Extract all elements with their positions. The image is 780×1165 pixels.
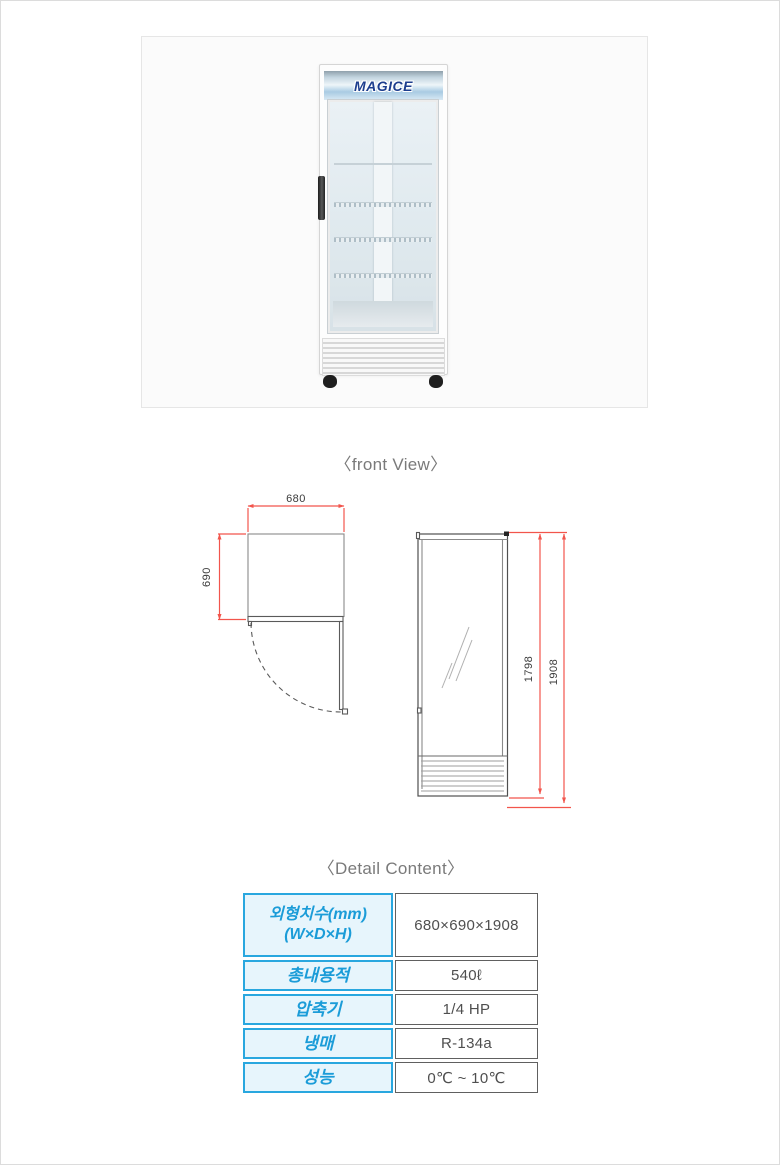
interior-floor xyxy=(333,301,433,327)
spec-label-capacity: 총내용적 xyxy=(243,960,393,991)
spec-value-dimensions: 680×690×1908 xyxy=(395,893,538,957)
shelf xyxy=(334,163,432,165)
brand-band: MAGICE xyxy=(324,71,443,100)
spec-label-performance: 성능 xyxy=(243,1062,393,1093)
dimension-drawings: 680 690 xyxy=(191,491,591,821)
front-view-section-label: 〈front View〉 xyxy=(1,450,780,475)
spec-value-compressor: 1/4 HP xyxy=(395,994,538,1025)
glass-door xyxy=(328,100,438,333)
inner-height-dimension-value: 1798 xyxy=(523,656,535,682)
width-dimension-value: 680 xyxy=(286,493,306,505)
spec-label-compressor: 압축기 xyxy=(243,994,393,1025)
brand-logo: MAGICE xyxy=(354,78,413,94)
wire-shelf xyxy=(334,202,432,207)
wire-shelf xyxy=(334,273,432,278)
top-view-drawing: 680 690 xyxy=(201,493,348,714)
spec-label-dimensions: 외형치수(mm) (W×D×H) xyxy=(243,893,393,957)
overall-height-dimension-value: 1908 xyxy=(548,659,560,685)
grille-lines xyxy=(421,761,504,791)
showcase-refrigerator-image: MAGICE xyxy=(319,64,448,389)
spec-label-dimensions-line2: (W×D×H) xyxy=(284,925,352,945)
door-handle xyxy=(318,176,325,220)
caster-wheel xyxy=(429,375,443,388)
elevation-drawing: 1798 1908 xyxy=(417,532,572,808)
spec-value-capacity: 540ℓ xyxy=(395,960,538,991)
spec-value-performance: 0℃ ~ 10℃ xyxy=(395,1062,538,1093)
depth-dimension-value: 690 xyxy=(201,567,213,587)
detail-content-section-label: 〈Detail Content〉 xyxy=(1,854,780,879)
spec-label-dimensions-line1: 외형치수(mm) xyxy=(269,905,367,925)
product-detail-page: MAGICE 〈front View〉 xyxy=(0,0,780,1165)
top-corner-mark xyxy=(504,532,509,537)
door-swing-arc xyxy=(251,623,341,712)
spec-value-refrigerant: R-134a xyxy=(395,1028,538,1059)
compressor-grille xyxy=(322,338,445,376)
fridge-body: MAGICE xyxy=(319,64,448,375)
wire-shelf xyxy=(334,237,432,242)
product-photo: MAGICE xyxy=(141,36,648,408)
spec-label-refrigerant: 냉매 xyxy=(243,1028,393,1059)
caster-wheel xyxy=(323,375,337,388)
spec-table: 외형치수(mm) (W×D×H) 680×690×1908 총내용적 540ℓ … xyxy=(243,893,538,1093)
